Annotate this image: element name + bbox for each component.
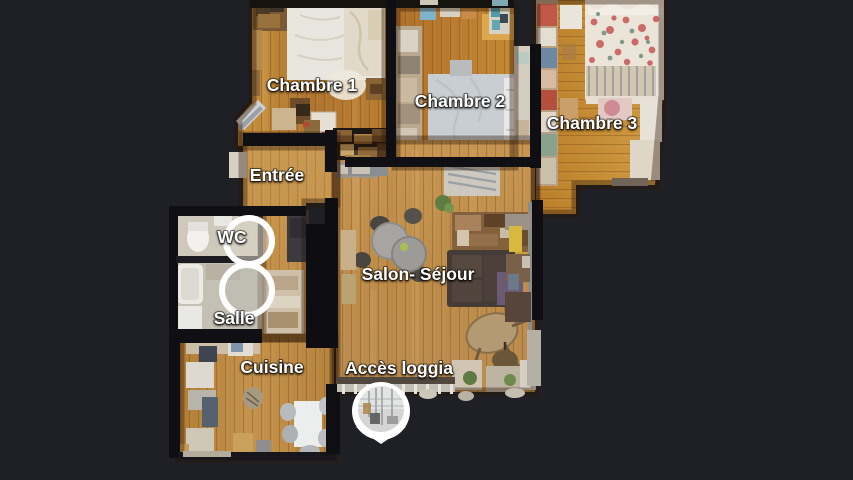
svg-text:Chambre 2: Chambre 2 bbox=[415, 91, 506, 111]
svg-text:Chambre 1: Chambre 1 bbox=[267, 75, 358, 95]
svg-text:Cuisine: Cuisine bbox=[240, 357, 303, 377]
svg-text:WC: WC bbox=[217, 227, 247, 247]
svg-text:Chambre 3: Chambre 3 bbox=[547, 113, 638, 133]
svg-text:Entrée: Entrée bbox=[250, 165, 305, 185]
svg-text:Salle: Salle bbox=[214, 308, 255, 328]
svg-text:Salon- Séjour: Salon- Séjour bbox=[362, 264, 475, 284]
svg-text:Accès loggia: Accès loggia bbox=[345, 358, 453, 378]
